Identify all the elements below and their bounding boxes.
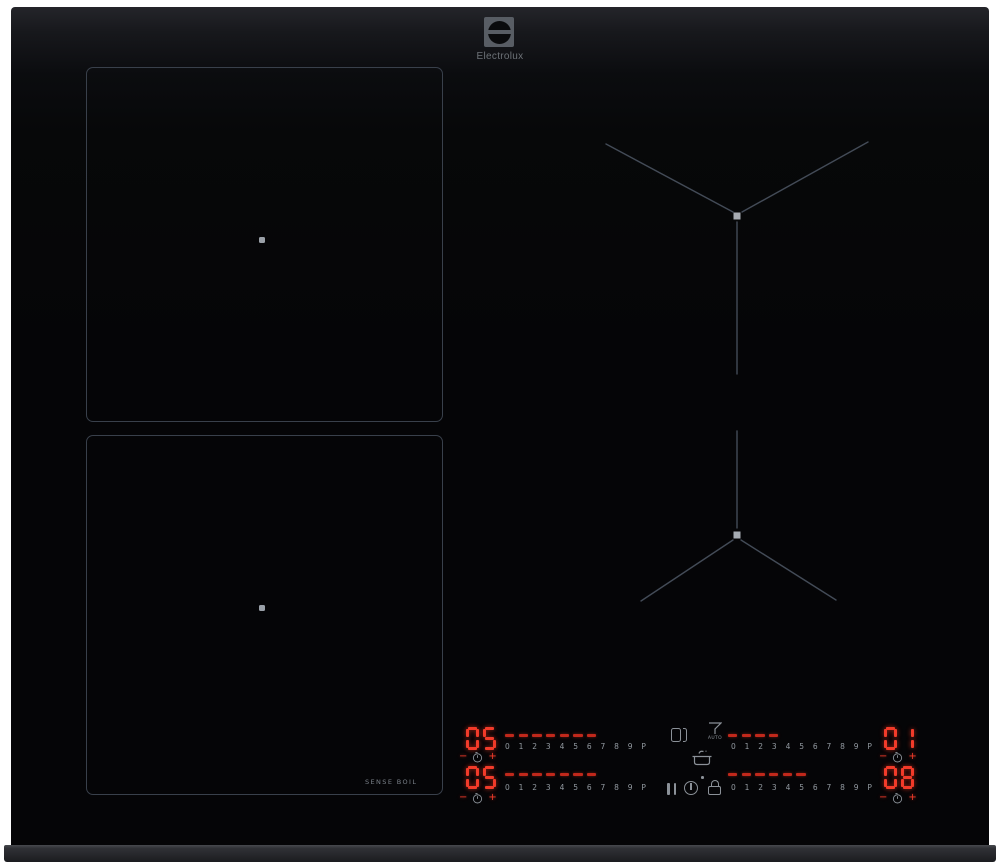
timer-stepper-rear-left: − + — [459, 751, 497, 763]
slider-scale-label[interactable]: 5 — [799, 783, 804, 792]
slider-dash — [769, 773, 778, 776]
slider-scale-label[interactable]: 9 — [854, 783, 859, 792]
slider-scale-label[interactable]: 7 — [826, 783, 831, 792]
slider-scale-label[interactable]: 8 — [614, 742, 619, 751]
timer-stepper-rear-right: − + — [879, 751, 917, 763]
slider-dash — [560, 734, 569, 737]
minus-button[interactable]: − — [879, 793, 887, 803]
front-trim — [4, 845, 996, 862]
slider-scale-label[interactable]: 5 — [573, 742, 578, 751]
pause-icon[interactable] — [667, 783, 676, 795]
power-slider-front-right[interactable]: 0123456789P — [731, 783, 872, 792]
slider-scale-label[interactable]: 6 — [813, 783, 818, 792]
slider-scale-label[interactable]: 5 — [573, 783, 578, 792]
slider-scale-label[interactable]: 3 — [772, 742, 777, 751]
slider-scale-label[interactable]: 8 — [840, 742, 845, 751]
plus-button[interactable]: + — [908, 752, 916, 762]
slider-scale-label[interactable]: P — [867, 742, 872, 751]
slider-scale-label[interactable]: 0 — [731, 742, 736, 751]
slider-dash — [728, 734, 737, 737]
timer-clock-icon[interactable] — [892, 793, 903, 804]
power-display-front-right — [884, 766, 918, 789]
seven-seg-digit — [466, 727, 479, 750]
slider-scale-label[interactable]: 1 — [519, 742, 524, 751]
slider-dash — [532, 773, 541, 776]
power-display-rear-left — [466, 727, 500, 750]
slider-dash — [519, 734, 528, 737]
power-level-dashes-front-right — [728, 773, 806, 776]
slider-dash — [519, 773, 528, 776]
slider-scale-label[interactable]: 0 — [505, 742, 510, 751]
minus-button[interactable]: − — [459, 793, 467, 803]
minus-button[interactable]: − — [459, 752, 467, 762]
slider-scale-label[interactable]: 8 — [614, 783, 619, 792]
slider-scale-label[interactable]: 7 — [826, 742, 831, 751]
slider-dash — [532, 734, 541, 737]
power-display-rear-right — [884, 727, 918, 750]
slider-scale-label[interactable]: 3 — [546, 783, 551, 792]
power-slider-rear-left[interactable]: 0123456789P — [505, 742, 646, 751]
brand-name: Electrolux — [450, 51, 550, 62]
slider-dash — [755, 734, 764, 737]
power-slider-rear-right[interactable]: 0123456789P — [731, 742, 872, 751]
slider-dash — [560, 773, 569, 776]
slider-scale-label[interactable]: 9 — [854, 742, 859, 751]
seven-seg-digit — [884, 727, 897, 750]
pause-bar — [674, 783, 677, 795]
plus-button[interactable]: + — [488, 793, 496, 803]
sense-boil-label: SENSE BOIL — [365, 778, 417, 786]
power-display-front-left — [466, 766, 500, 789]
slider-scale-label[interactable]: 2 — [532, 742, 537, 751]
slider-dash — [505, 734, 514, 737]
pause-bar — [667, 783, 670, 795]
slider-scale-label[interactable]: 4 — [560, 742, 565, 751]
power-level-dashes-rear-right — [728, 734, 778, 737]
flex-zone-front-left — [86, 435, 443, 795]
slider-dash — [505, 773, 514, 776]
bridge-zones-icon[interactable] — [671, 727, 688, 743]
slider-scale-label[interactable]: 3 — [772, 783, 777, 792]
flex-zone-rear-left — [86, 67, 443, 422]
minus-button[interactable]: − — [879, 752, 887, 762]
bridge-zone-box — [671, 728, 681, 742]
slider-scale-label[interactable]: 0 — [505, 783, 510, 792]
slider-dash — [573, 773, 582, 776]
zone-center-dot-rear-left — [259, 237, 265, 243]
seven-seg-digit — [483, 727, 496, 750]
seven-seg-digit — [901, 727, 914, 750]
slider-scale-label[interactable]: 6 — [813, 742, 818, 751]
hob2hood-auto-icon[interactable]: AUTO — [705, 722, 725, 744]
slider-scale-label[interactable]: 4 — [786, 742, 791, 751]
seven-seg-digit — [466, 766, 479, 789]
slider-scale-label[interactable]: 2 — [758, 742, 763, 751]
electrolux-logo-icon — [484, 17, 514, 47]
slider-dash — [587, 773, 596, 776]
seven-seg-digit — [901, 766, 914, 789]
slider-scale-label[interactable]: 5 — [799, 742, 804, 751]
slider-dash — [796, 773, 805, 776]
slider-scale-label[interactable]: 3 — [546, 742, 551, 751]
slider-scale-label[interactable]: 2 — [758, 783, 763, 792]
slider-scale-label[interactable]: 8 — [840, 783, 845, 792]
seven-seg-digit — [483, 766, 496, 789]
seven-seg-digit — [884, 766, 897, 789]
slider-scale-label[interactable]: 7 — [600, 742, 605, 751]
slider-dash — [546, 773, 555, 776]
slider-scale-label[interactable]: 2 — [532, 783, 537, 792]
slider-dash — [769, 734, 778, 737]
slider-dash — [742, 734, 751, 737]
bridge-zone-bracket — [683, 728, 687, 742]
slider-dash — [728, 773, 737, 776]
power-slider-front-left[interactable]: 0123456789P — [505, 783, 646, 792]
indicator-dot — [701, 776, 704, 779]
slider-scale-label[interactable]: P — [867, 783, 872, 792]
timer-clock-icon[interactable] — [472, 752, 483, 763]
slider-dash — [742, 773, 751, 776]
slider-scale-label[interactable]: 1 — [519, 783, 524, 792]
zone-center-dot-front-left — [259, 605, 265, 611]
slider-scale-label[interactable]: 9 — [628, 783, 633, 792]
slider-scale-label[interactable]: 0 — [731, 783, 736, 792]
timer-stepper-front-left: − + — [459, 792, 497, 804]
slider-scale-label[interactable]: 9 — [628, 742, 633, 751]
slider-scale-label[interactable]: P — [641, 742, 646, 751]
slider-scale-label[interactable]: 6 — [587, 742, 592, 751]
power-line — [690, 783, 692, 790]
slider-dash — [546, 734, 555, 737]
slider-scale-label[interactable]: 4 — [560, 783, 565, 792]
power-level-dashes-rear-left — [505, 734, 596, 737]
slider-dash — [573, 734, 582, 737]
slider-scale-label[interactable]: P — [641, 783, 646, 792]
slider-dash — [587, 734, 596, 737]
hood-auto-label: AUTO — [708, 736, 722, 741]
plus-button[interactable]: + — [488, 752, 496, 762]
slider-scale-label[interactable]: 4 — [786, 783, 791, 792]
sense-boil-pot-icon[interactable] — [690, 748, 714, 767]
slider-dash — [783, 773, 792, 776]
timer-clock-icon[interactable] — [892, 752, 903, 763]
slider-scale-label[interactable]: 6 — [587, 783, 592, 792]
slider-scale-label[interactable]: 1 — [745, 742, 750, 751]
hood-funnel-icon — [708, 722, 722, 735]
power-icon[interactable] — [684, 781, 698, 795]
timer-clock-icon[interactable] — [472, 793, 483, 804]
slider-dash — [755, 773, 764, 776]
induction-hob-photo: Electrolux SENSE BOIL 0123456789P − + 01 — [0, 0, 1000, 867]
slider-scale-label[interactable]: 1 — [745, 783, 750, 792]
timer-stepper-front-right: − + — [879, 792, 917, 804]
power-level-dashes-front-left — [505, 773, 596, 776]
lock-body — [708, 786, 721, 795]
plus-button[interactable]: + — [908, 793, 916, 803]
slider-scale-label[interactable]: 7 — [600, 783, 605, 792]
electrolux-logo-bar — [487, 30, 511, 35]
child-lock-icon[interactable] — [708, 780, 721, 795]
